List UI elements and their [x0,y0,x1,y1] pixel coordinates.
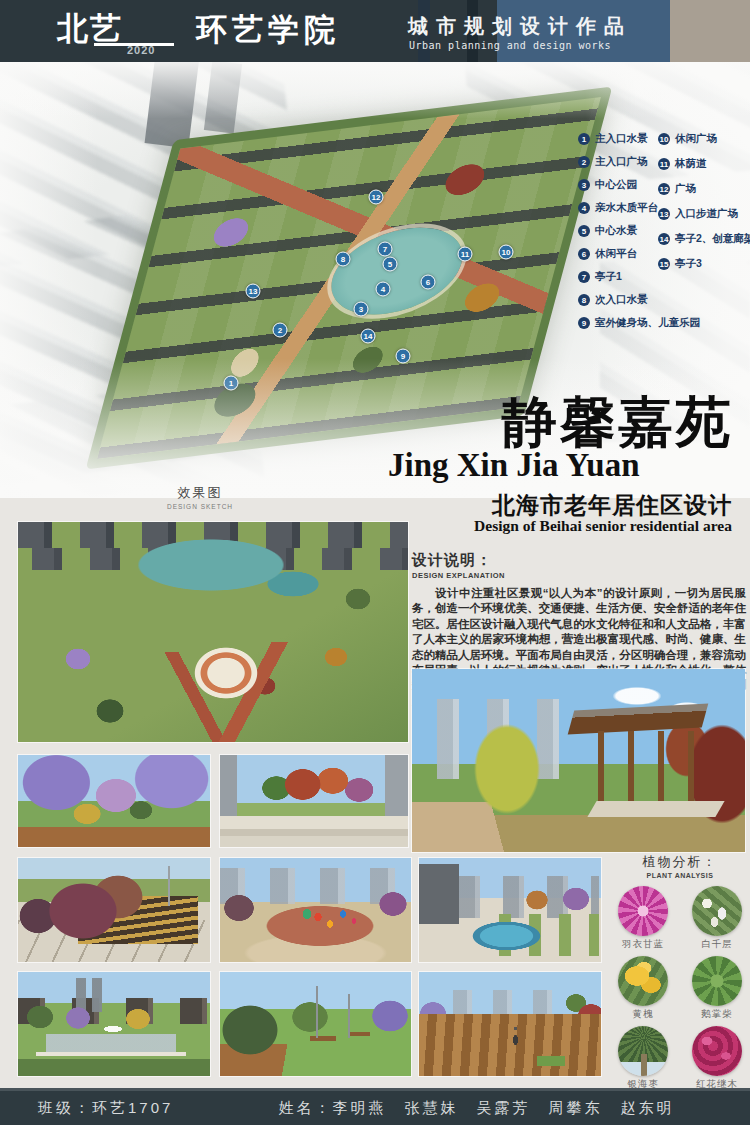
legend-number-badge: 6 [578,248,590,260]
legend-number-badge: 12 [658,183,670,195]
photo-pool-plaza [419,858,601,962]
header-bar: 北艺 2020 环艺学院 城市规划设计作品 Urban planning and… [0,0,750,62]
photo-lawn-benches [220,972,411,1076]
plant-analysis-heading-en: PLANT ANALYSIS [612,872,748,879]
legend-label: 休闲平台 [595,247,637,261]
legend-item: 5中心水景 [578,224,658,238]
legend-number-badge: 8 [578,294,590,306]
legend-item: 7亭子1 [578,270,658,284]
legend-label: 亭子2、创意廊架 [675,232,750,246]
plant-photo-schefflera [692,956,742,1006]
photo-purple-trees-walk [18,755,210,847]
project-subtitle-en: Design of Beihai senior residential area [474,517,732,535]
header-tan-panel [670,0,750,62]
legend-number-badge: 3 [578,179,590,191]
photo-central-waterscape-aerial [18,522,408,742]
plan-marker: 10 [499,245,514,260]
header-title-cn: 城市规划设计作品 [408,13,632,40]
legend-label: 广场 [675,182,696,196]
plant-card: 黄槐 [612,956,674,1021]
legend-number-badge: 9 [578,317,590,329]
footer-names: 姓名：李明燕 张慧妹 吴露芳 周攀东 赵东明 [278,1099,674,1118]
plan-marker: 3 [354,302,369,317]
plant-photo-loropetalum [692,1026,742,1076]
legend-number-badge: 2 [578,156,590,168]
legend-column-right: 10休闲广场 11林荫道 12广场 13入口步道广场 14亭子2、创意廊架 15… [658,132,750,339]
photo-children-playground [220,858,411,962]
plant-name: 黄槐 [612,1008,674,1021]
plant-photo-yellow-cassia [618,956,668,1006]
legend-item: 9室外健身场、儿童乐园 [578,316,658,330]
legend-item: 6休闲平台 [578,247,658,261]
plant-card: 红花继木 [686,1026,748,1091]
explanation-heading-cn: 设计说明： [412,551,746,570]
legend-number-badge: 11 [658,158,670,170]
legend-column-left: 1主入口水景 2主入口广场 3中心公园 4亲水木质平台 5中心水景 6休闲平台 … [578,132,658,339]
legend-number-badge: 1 [578,133,590,145]
plan-marker: 8 [336,252,351,267]
legend-item: 13入口步道广场 [658,207,750,221]
footer-class: 班级：环艺1707 [38,1099,173,1118]
explanation-heading-en: DESIGN EXPLANATION [412,571,746,580]
plan-legend: 1主入口水景 2主入口广场 3中心公园 4亲水木质平台 5中心水景 6休闲平台 … [578,132,750,339]
legend-label: 次入口水景 [595,293,648,307]
plant-analysis-heading-cn: 植物分析： [612,853,748,871]
plan-marker: 9 [396,349,411,364]
plant-name: 白千层 [686,938,748,951]
plan-marker: 5 [383,257,398,272]
legend-label: 主入口广场 [595,155,648,169]
header-title-en: Urban planning and design works [409,40,611,51]
plant-grid: 羽衣甘蓝 白千层 黄槐 鹅掌柴 银海枣 红花继木 [612,886,748,1091]
plant-card: 白千层 [686,886,748,951]
plan-marker: 14 [361,329,376,344]
photo-flower-bed-path [220,755,408,847]
plan-marker: 6 [421,275,436,290]
project-title-pinyin: Jing Xin Jia Yuan [388,447,640,484]
sketch-caption-en: DESIGN SKETCH [148,503,252,510]
plant-name: 羽衣甘蓝 [612,938,674,951]
legend-item: 4亲水木质平台 [578,201,658,215]
plan-marker: 2 [273,323,288,338]
pavilion-roof-illustration [568,704,709,735]
legend-item: 11林荫道 [658,157,750,171]
legend-number-badge: 5 [578,225,590,237]
legend-label: 林荫道 [675,157,707,171]
sketch-caption-cn: 效果图 [148,484,252,502]
legend-label: 亭子1 [595,270,622,284]
plant-photo-silver-date-palm [618,1026,668,1076]
legend-label: 中心水景 [595,224,637,238]
plan-marker: 11 [458,247,473,262]
legend-item: 15亭子3 [658,257,750,271]
photo-wooden-pavilion [412,669,745,852]
legend-item: 10休闲广场 [658,132,750,146]
legend-number-badge: 10 [658,133,670,145]
photo-fountain-garden [18,972,210,1076]
photo-amphitheater-steps [18,858,210,962]
legend-item: 3中心公园 [578,178,658,192]
sketch-caption: 效果图 DESIGN SKETCH [148,484,252,510]
legend-number-badge: 15 [658,258,670,270]
legend-item: 14亭子2、创意廊架 [658,232,750,246]
legend-item: 12广场 [658,182,750,196]
pavilion-posts-illustration [598,731,702,803]
logo-school-name: 环艺学院 [196,9,340,51]
plant-photo-ornamental-kale [618,886,668,936]
legend-label: 入口步道广场 [675,207,738,221]
plant-card: 羽衣甘蓝 [612,886,674,951]
legend-label: 亭子3 [675,257,702,271]
legend-number-badge: 14 [658,233,670,245]
legend-number-badge: 7 [578,271,590,283]
legend-number-badge: 13 [658,208,670,220]
plant-name: 鹅掌柴 [686,1008,748,1021]
legend-item: 1主入口水景 [578,132,658,146]
plan-marker: 4 [376,282,391,297]
plan-marker: 1 [224,376,239,391]
legend-label: 休闲广场 [675,132,717,146]
photo-boardwalk-stroll [419,972,601,1076]
legend-label: 亲水木质平台 [595,201,658,215]
plant-card: 银海枣 [612,1026,674,1091]
plant-photo-melaleuca [692,886,742,936]
legend-item: 8次入口水景 [578,293,658,307]
legend-item: 2主入口广场 [578,155,658,169]
plant-card: 鹅掌柴 [686,956,748,1021]
logo-year: 2020 [127,44,155,56]
legend-label: 主入口水景 [595,132,648,146]
pavilion-plinth-illustration [587,801,724,817]
plan-marker: 12 [369,190,384,205]
legend-number-badge: 4 [578,202,590,214]
footer-bar: 班级：环艺1707 姓名：李明燕 张慧妹 吴露芳 周攀东 赵东明 [0,1088,750,1125]
legend-label: 中心公园 [595,178,637,192]
poster: 北艺 2020 环艺学院 城市规划设计作品 Urban planning and… [0,0,750,1125]
plan-marker: 13 [246,284,261,299]
plant-analysis-panel: 植物分析： PLANT ANALYSIS 羽衣甘蓝 白千层 黄槐 鹅掌柴 银海枣 [612,853,748,1091]
plan-marker: 7 [378,242,393,257]
